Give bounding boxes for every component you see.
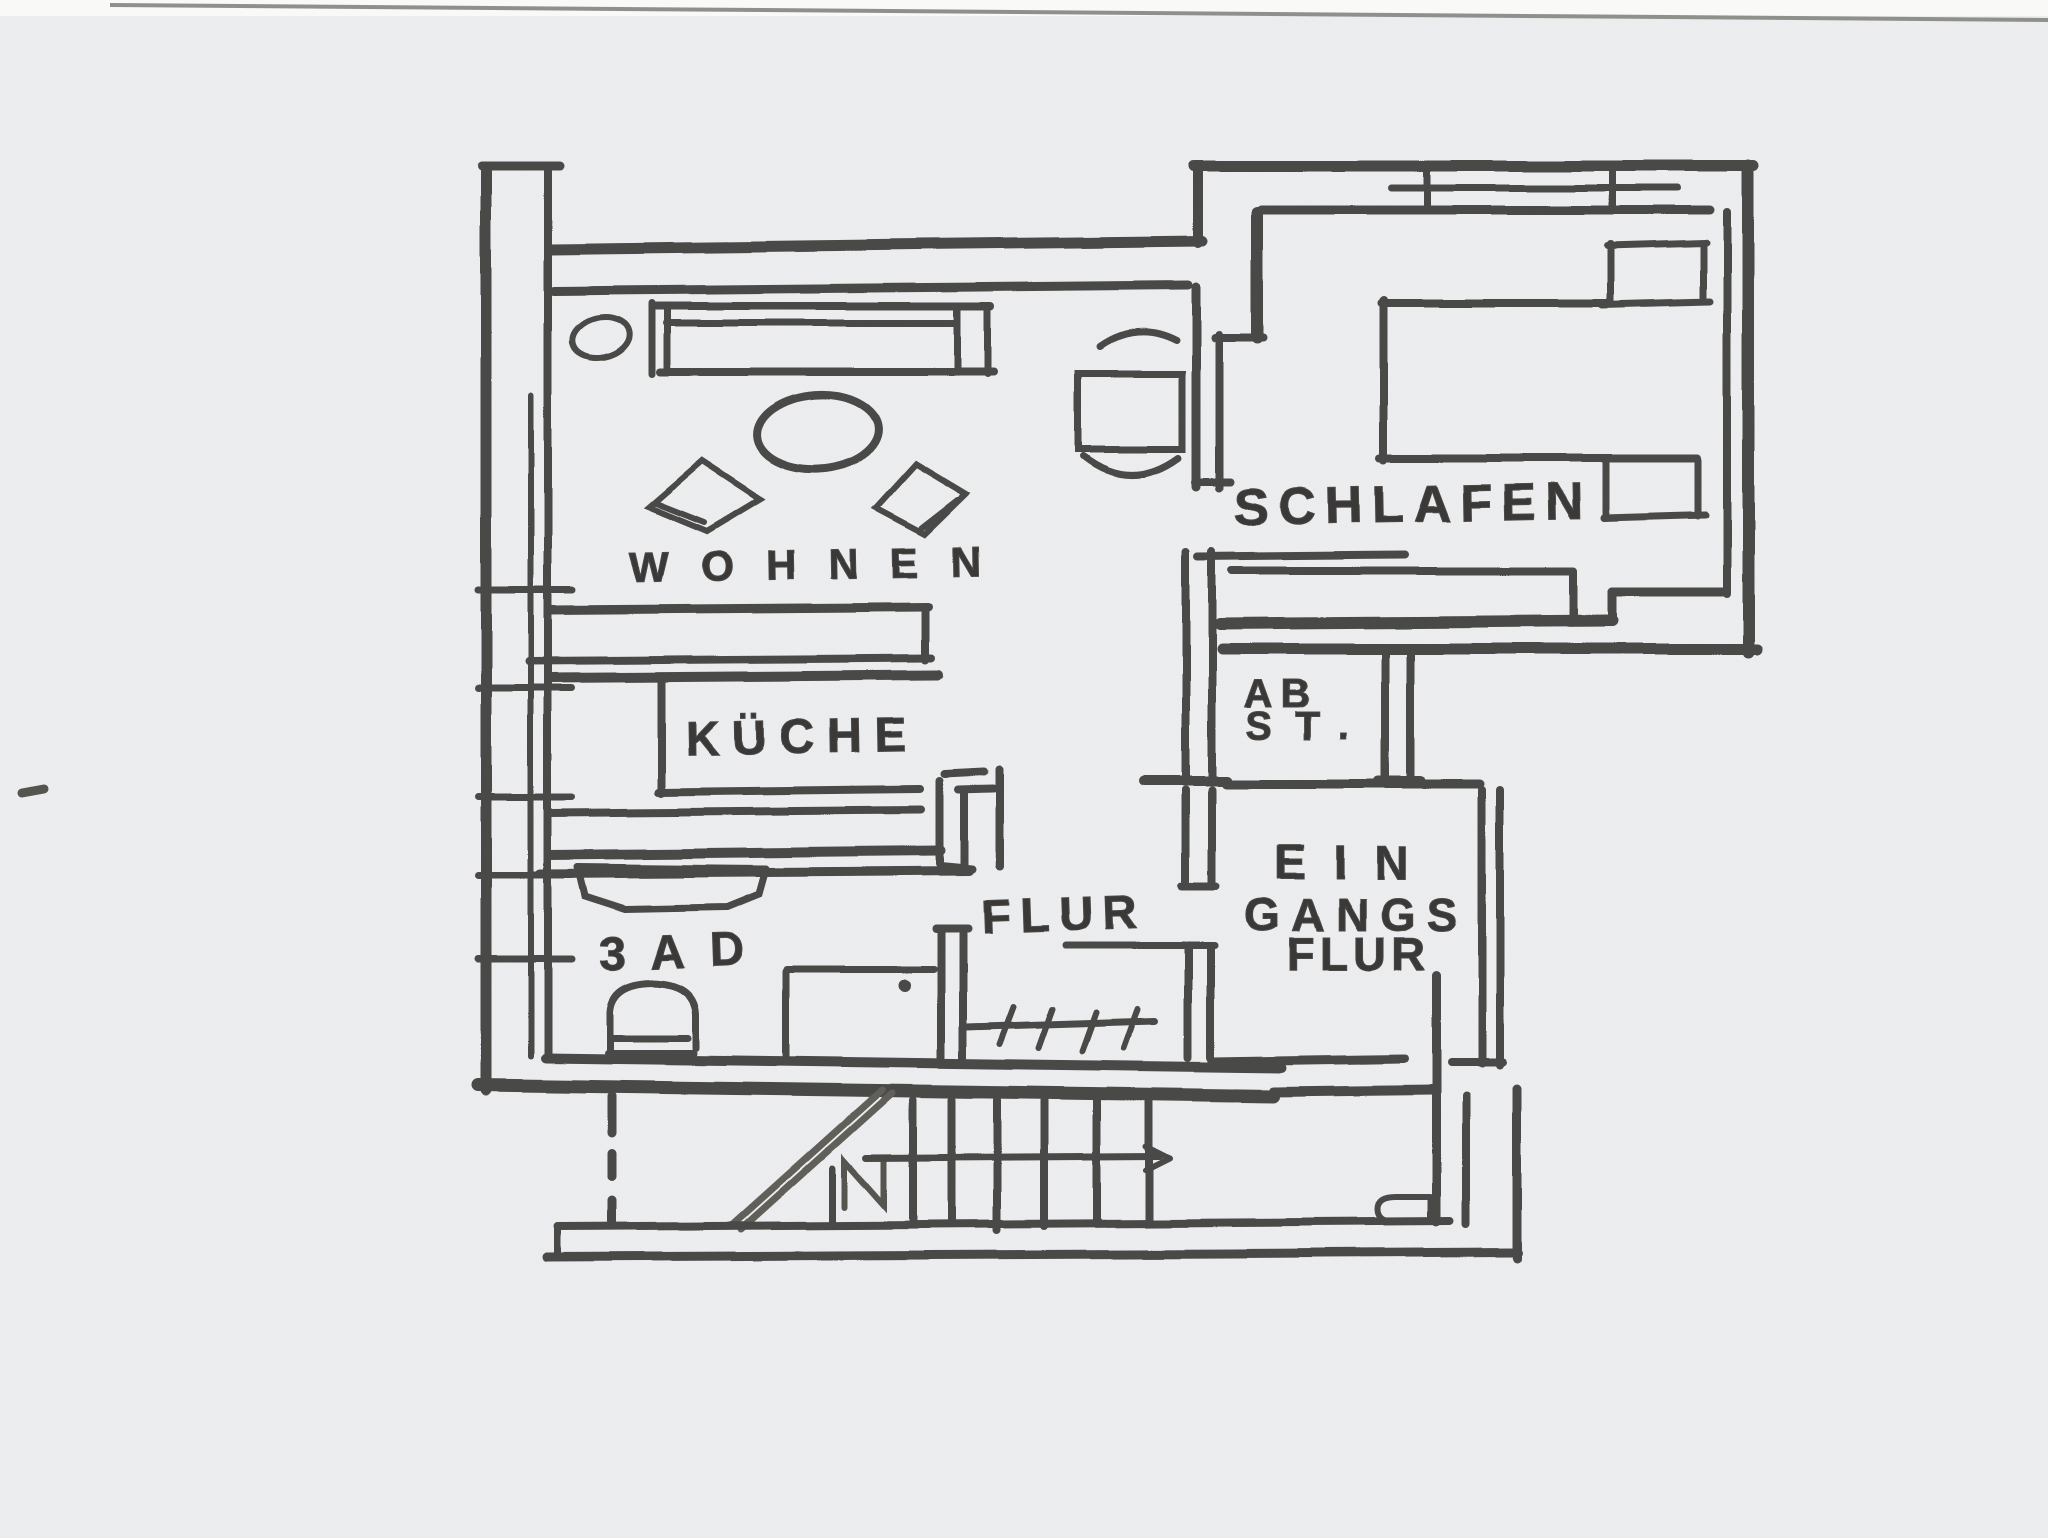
- svg-text:3AD: 3AD: [598, 923, 745, 981]
- svg-text:EIN: EIN: [1274, 837, 1409, 890]
- svg-text:FLUR: FLUR: [1286, 928, 1425, 980]
- svg-text:FLUR: FLUR: [980, 886, 1138, 944]
